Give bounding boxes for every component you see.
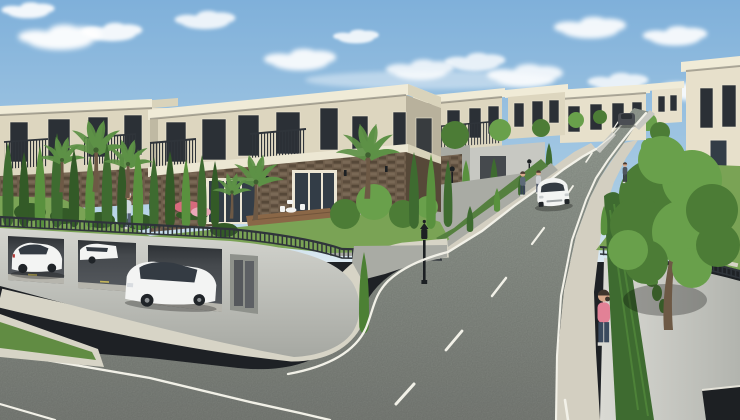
tree xyxy=(330,199,360,229)
tree xyxy=(593,110,607,124)
tree xyxy=(441,121,469,149)
lamp-lantern xyxy=(421,229,427,239)
garage-entrance-opening xyxy=(702,386,740,420)
window xyxy=(658,96,665,112)
wall-lamp xyxy=(344,170,347,176)
window xyxy=(514,103,524,127)
architectural-rendering: Modern two-storey villa complex with ter… xyxy=(0,0,740,420)
tree xyxy=(356,184,392,220)
wheel xyxy=(538,202,543,207)
patio-door xyxy=(292,170,337,214)
window xyxy=(202,119,226,160)
patio-chair xyxy=(287,200,293,204)
lamp-pole xyxy=(423,240,426,282)
wall-lamp xyxy=(385,166,388,172)
headlight xyxy=(127,283,133,287)
window xyxy=(670,95,677,111)
distant-car-dark xyxy=(616,113,636,128)
tree xyxy=(489,119,511,141)
window xyxy=(700,88,713,128)
wheel xyxy=(564,199,569,204)
ponytail xyxy=(605,297,610,302)
car-window xyxy=(621,114,632,119)
headlight xyxy=(565,193,570,196)
patio-table xyxy=(286,207,297,212)
rendering-canvas: Modern two-storey villa complex with ter… xyxy=(0,0,740,420)
headlight xyxy=(539,196,544,199)
wheel xyxy=(88,256,95,263)
cloud-bank xyxy=(305,71,555,89)
window xyxy=(549,100,559,123)
window xyxy=(320,108,338,150)
car-body xyxy=(80,244,118,260)
patio-chair xyxy=(300,204,305,210)
far-villa-wall xyxy=(652,88,682,124)
window xyxy=(722,85,736,127)
lamp-base xyxy=(421,280,427,284)
patio-chair xyxy=(280,206,285,212)
tree xyxy=(532,119,550,137)
taillight xyxy=(13,254,15,257)
tree xyxy=(568,112,584,128)
lamp-finial xyxy=(423,220,426,223)
garage-elevator-door xyxy=(230,254,258,314)
